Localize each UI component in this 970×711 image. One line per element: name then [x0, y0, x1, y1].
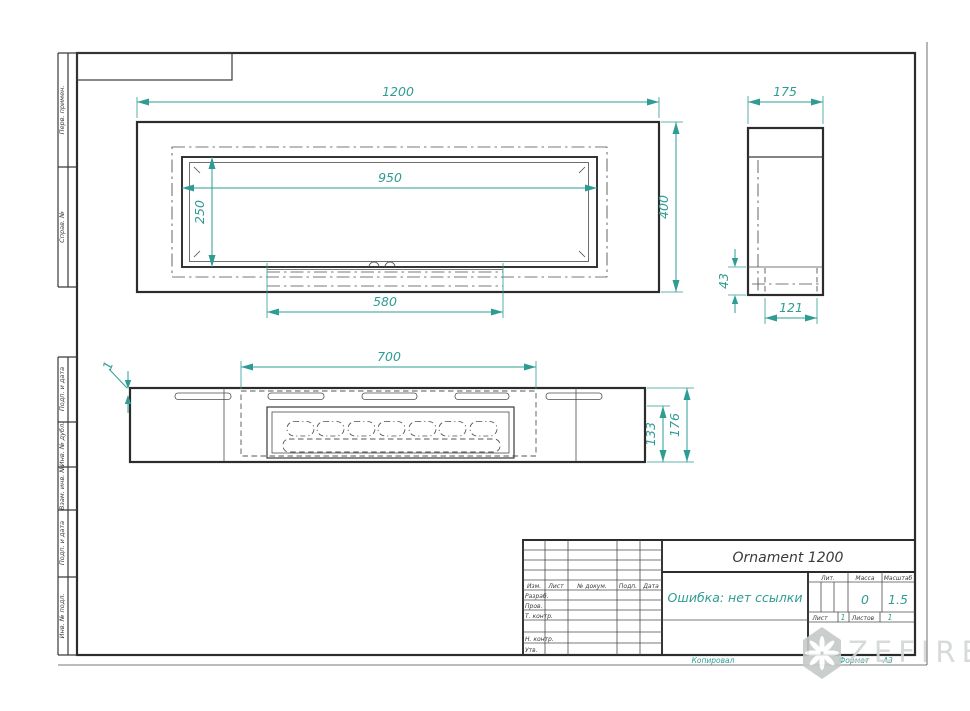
side-chain-lines	[752, 160, 820, 292]
slot	[175, 393, 231, 400]
margin-label-podp-data-1: Подп. и дата	[58, 367, 66, 411]
dim-176: 176	[667, 413, 682, 437]
margin-label-sprav-no: Справ. №	[58, 211, 66, 243]
dim-400: 400	[656, 195, 671, 219]
sheets-label: Листов	[851, 615, 875, 622]
zefire-watermark: ZEFIRE	[803, 627, 970, 679]
port	[317, 422, 344, 437]
dim-1200: 1200	[382, 84, 414, 99]
top-view: 1200 400 950 250 580	[137, 84, 683, 318]
top-view-dimensions: 1200 400 950 250 580	[137, 84, 683, 318]
col-data: Дата	[642, 583, 659, 590]
mass-label: Масса	[855, 575, 874, 582]
col-list: Лист	[547, 583, 564, 590]
drawing-sheet: Перв. примен. Справ. № Подп. и дата Инв.…	[0, 0, 970, 711]
margin-label-podp-data-2: Подп. и дата	[58, 521, 66, 565]
top-view-chainline-box	[172, 147, 607, 277]
burner-window-inner	[272, 412, 509, 453]
extension-lines	[728, 96, 823, 324]
dim-43-arrows	[732, 258, 738, 304]
dim-121: 121	[779, 300, 803, 315]
margin-label-vzam-inv: Взам. инв. №	[58, 466, 66, 510]
sheet-value: 1	[841, 613, 846, 622]
document-title: Ornament 1200	[733, 550, 844, 566]
sheet-label: Лист	[811, 615, 828, 622]
front-view-dimensions: 700 1 133 176	[99, 349, 694, 462]
scale-value: 1.5	[888, 592, 908, 607]
dim-175: 175	[773, 84, 797, 99]
slot	[455, 393, 509, 400]
insert-dashed-box	[241, 391, 536, 456]
top-slots	[175, 393, 602, 400]
dim-43: 43	[716, 273, 731, 289]
dim-580: 580	[373, 294, 397, 309]
side-view: 175 43 121	[716, 84, 823, 324]
dim-133: 133	[643, 422, 658, 446]
side-view-outline	[748, 128, 823, 295]
row-n-kontr: Н. контр.	[525, 636, 554, 643]
port	[348, 422, 375, 437]
port	[439, 422, 466, 437]
col-dokum: № докум.	[576, 583, 607, 590]
margin-label-perv-primen: Перв. примен.	[58, 86, 66, 135]
col-izm: Изм.	[527, 583, 541, 590]
scale-label: Масштаб	[884, 575, 913, 582]
front-view: 700 1 133 176	[99, 349, 694, 462]
side-tray-dashed	[765, 268, 817, 294]
row-razrab: Разраб.	[525, 593, 549, 600]
dim-line-1	[109, 369, 128, 413]
margin-label-inv-podl: Инв. № подл.	[58, 594, 66, 639]
side-view-dimensions: 175 43 121	[716, 84, 823, 324]
margin-column: Перв. примен. Справ. № Подп. и дата Инв.…	[58, 53, 77, 655]
sheets-value: 1	[888, 613, 893, 622]
dim-700: 700	[377, 349, 401, 364]
panel-seam-lines	[224, 388, 576, 461]
extension-lines	[137, 97, 683, 318]
document-name-error: Ошибка: нет ссылки	[668, 590, 803, 605]
row-t-kontr: Т. контр.	[525, 613, 553, 620]
dim-1: 1	[99, 359, 116, 372]
burner-window	[267, 407, 514, 458]
margin-label-inv-dubl: Инв. № дубл.	[58, 422, 66, 466]
slot	[362, 393, 417, 400]
burner-ports	[287, 422, 497, 437]
port	[287, 422, 314, 437]
slot	[546, 393, 602, 400]
drawing-page: Перв. примен. Справ. № Подп. и дата Инв.…	[0, 0, 970, 711]
port	[378, 422, 405, 437]
zefire-wordmark: ZEFIRE	[848, 635, 970, 669]
fuel-tray-dashed	[283, 439, 500, 452]
zefire-fan-icon	[805, 636, 839, 670]
dim-950: 950	[378, 170, 402, 185]
copied-label: Копировал	[692, 656, 735, 665]
mass-value: 0	[861, 592, 869, 607]
row-prov: Пров.	[525, 603, 543, 610]
extension-lines	[241, 361, 694, 462]
slot	[268, 393, 324, 400]
tray-chain-lines	[267, 272, 503, 286]
col-podp: Подп.	[619, 583, 637, 590]
lit-label: Лит.	[820, 575, 835, 582]
port	[470, 422, 497, 437]
port	[409, 422, 436, 437]
corner-stamp-box	[77, 53, 232, 80]
dim-250: 250	[192, 200, 207, 224]
row-utv: Утв.	[525, 647, 538, 654]
